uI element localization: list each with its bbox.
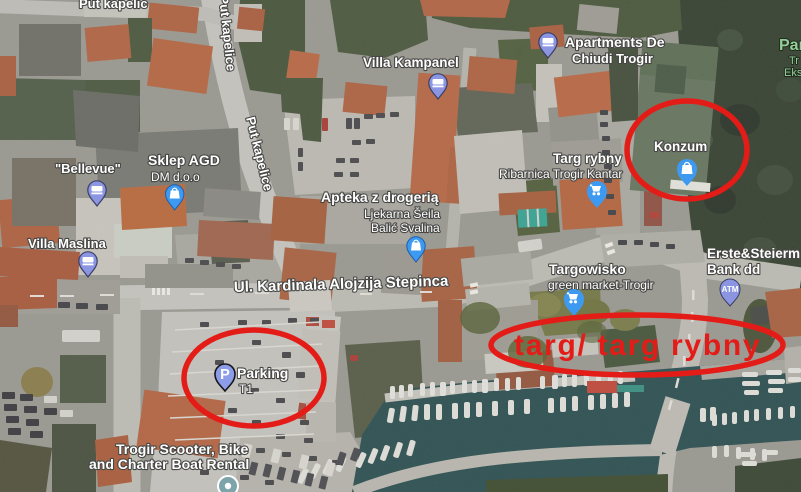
svg-text:"Bellevue": "Bellevue": [55, 161, 121, 176]
svg-text:Targowisko: Targowisko: [549, 261, 626, 277]
svg-text:Ljekarna Šeila: Ljekarna Šeila: [364, 206, 440, 221]
svg-text:ATM: ATM: [722, 285, 739, 294]
svg-text:Konzum: Konzum: [654, 139, 707, 154]
svg-text:Parking: Parking: [237, 365, 288, 381]
svg-text:Balić Svalina: Balić Svalina: [371, 221, 440, 235]
svg-text:Chiudi Trogir: Chiudi Trogir: [572, 51, 653, 66]
svg-text:Ribarnica Trogir Kantar: Ribarnica Trogir Kantar: [499, 167, 622, 181]
svg-text:Erste&Steierm: Erste&Steierm: [707, 246, 800, 261]
svg-text:Put kapelic: Put kapelic: [79, 0, 148, 11]
svg-text:Villa Kampanel: Villa Kampanel: [363, 55, 459, 70]
svg-text:Bank dd: Bank dd: [707, 262, 760, 277]
svg-text:Targ rybny: Targ rybny: [553, 151, 622, 166]
svg-text:Eks: Eks: [784, 67, 801, 79]
svg-text:green market-Trogir: green market-Trogir: [548, 278, 654, 292]
svg-text:Sklep AGD: Sklep AGD: [148, 152, 220, 168]
svg-text:targ/ targ rybny: targ/ targ rybny: [514, 329, 761, 362]
svg-text:Par: Par: [779, 37, 801, 54]
svg-text:Tr: Tr: [789, 55, 799, 67]
svg-text:Villa Maslina: Villa Maslina: [28, 236, 107, 251]
svg-text:Apartments De: Apartments De: [565, 34, 665, 50]
svg-text:T1: T1: [239, 382, 253, 396]
svg-text:DM d.o.o: DM d.o.o: [151, 170, 200, 184]
svg-text:and Charter Boat Rental: and Charter Boat Rental: [89, 456, 249, 472]
svg-text:Apteka z drogerią: Apteka z drogerią: [321, 189, 439, 205]
svg-text:P: P: [220, 367, 230, 383]
svg-text:Trogir Scooter, Bike: Trogir Scooter, Bike: [116, 441, 248, 457]
